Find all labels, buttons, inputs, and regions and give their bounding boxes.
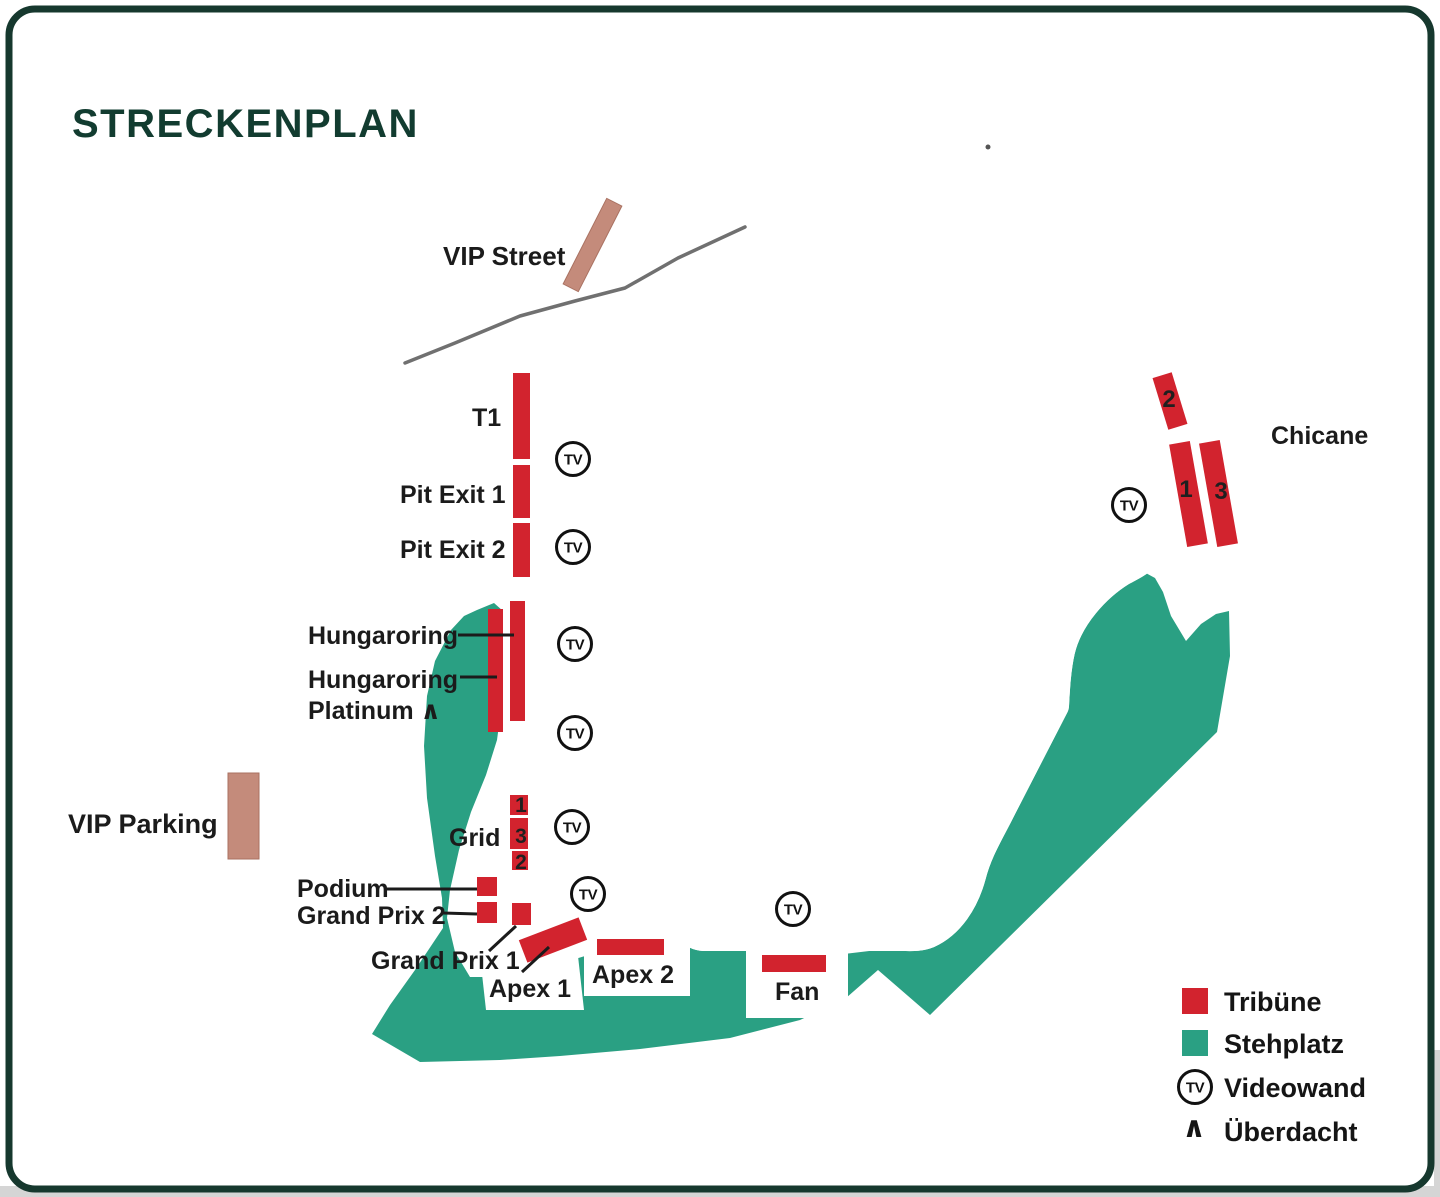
svg-text:TV: TV (566, 637, 585, 654)
videowand-tv-icon: TV (1113, 489, 1146, 522)
label-podium: Podium (297, 875, 389, 903)
grandstand-hungaroring (510, 601, 525, 721)
legend-videowand-label: Videowand (1224, 1073, 1366, 1103)
label-apex-2: Apex 2 (592, 961, 674, 989)
videowand-tv-icon: TV (557, 443, 590, 476)
grandstand-apex-2 (597, 939, 664, 955)
pointer-line (443, 913, 477, 914)
videowand-tv-icon: TV (777, 893, 810, 926)
streckenplan-page: STRECKENPLAN 132213 TVTVTVTVTVTVTVTV VIP… (0, 0, 1440, 1197)
stand-number-3: 3 (1214, 478, 1227, 505)
label-grid: Grid (449, 824, 500, 852)
label-pit-exit-2: Pit Exit 2 (400, 536, 506, 564)
grandstand-hungaroring-platinum (488, 609, 503, 732)
videowand-tv-icon: TV (572, 878, 605, 911)
legend-tv-icon: TV (1179, 1071, 1212, 1104)
legend-tribune-swatch (1182, 988, 1208, 1014)
stand-number-2: 2 (515, 851, 527, 874)
svg-text:TV: TV (1186, 1080, 1205, 1097)
label-grand-prix-1: Grand Prix 1 (371, 947, 520, 975)
vip-parking-lot (228, 773, 259, 859)
legend-stehplatz-swatch (1182, 1030, 1208, 1056)
svg-text:TV: TV (564, 452, 583, 469)
label-vip-parking: VIP Parking (68, 809, 218, 839)
legend-ueberdacht-label: Überdacht (1224, 1117, 1358, 1147)
svg-text:TV: TV (564, 540, 583, 557)
svg-text:TV: TV (579, 887, 598, 904)
label-pit-exit-1: Pit Exit 1 (400, 481, 506, 509)
track-map: STRECKENPLAN 132213 TVTVTVTVTVTVTVTV VIP… (0, 0, 1440, 1197)
legend-tribune-label: Tribüne (1224, 987, 1322, 1017)
stand-number-2: 2 (1162, 386, 1175, 413)
speck-artifact (986, 145, 991, 150)
grandstand-grand-prix-1 (512, 903, 531, 925)
svg-text:TV: TV (566, 726, 585, 743)
legend-covered-icon: ∧ (1182, 1112, 1206, 1144)
label-hungaroring: Hungaroring (308, 622, 458, 650)
grandstand-grand-prix-2 (477, 902, 497, 923)
label-fan: Fan (775, 978, 819, 1006)
grandstand-t1 (513, 373, 530, 459)
label-vip-street: VIP Street (443, 241, 566, 271)
label-hungaroring-platinum-line1: Hungaroring (308, 666, 458, 694)
videowand-tv-icon: TV (559, 628, 592, 661)
grandstand-fan (762, 955, 826, 972)
stand-number-3: 3 (515, 825, 527, 848)
stand-number-1: 1 (515, 794, 527, 817)
grandstand-podium (477, 877, 497, 896)
grandstand-pit-exit-2 (513, 523, 530, 577)
videowand-tv-icon: TV (557, 531, 590, 564)
videowand-tv-icon: TV (556, 811, 589, 844)
svg-text:TV: TV (563, 820, 582, 837)
photo-edge-right (1434, 1050, 1440, 1197)
stand-number-1: 1 (1179, 476, 1192, 503)
svg-text:TV: TV (784, 902, 803, 919)
grandstand-pit-exit-1 (513, 465, 530, 518)
legend-stehplatz-label: Stehplatz (1224, 1029, 1344, 1059)
page-title: STRECKENPLAN (72, 102, 419, 146)
label-grand-prix-2: Grand Prix 2 (297, 902, 446, 930)
svg-text:TV: TV (1120, 498, 1139, 515)
videowand-tv-icon: TV (559, 717, 592, 750)
label-chicane: Chicane (1271, 422, 1368, 450)
label-apex-1: Apex 1 (489, 975, 571, 1003)
label-t1: T1 (472, 404, 501, 432)
label-hungaroring-platinum-line2: Platinum ∧ (308, 697, 441, 725)
